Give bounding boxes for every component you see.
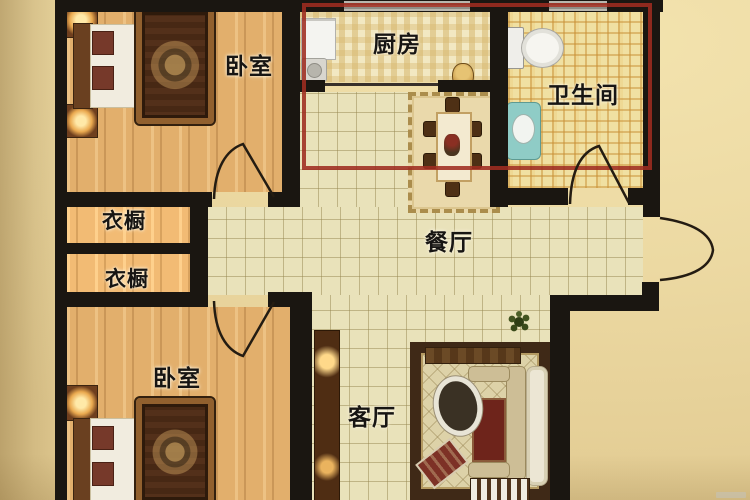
- nightstand-lamp-icon: [64, 385, 98, 421]
- wall-segment: [55, 243, 190, 254]
- sofa-arm: [468, 462, 510, 478]
- room-label-bedroom-bottom: 卧室: [153, 359, 201, 393]
- wall-segment: [268, 192, 300, 207]
- wall-segment: [490, 188, 568, 205]
- room-label-wardrobe-top: 衣橱: [102, 205, 146, 235]
- room-label-dining: 餐厅: [425, 223, 473, 257]
- bed-pillow: [92, 66, 114, 90]
- nightstand-lamp-icon: [64, 104, 98, 138]
- room-label-kitchen: 厨房: [373, 25, 421, 59]
- bed-pillow: [92, 462, 114, 486]
- room-label-bedroom-top: 卧室: [225, 47, 273, 81]
- room-label-bathroom: 卫生间: [547, 76, 619, 110]
- dining-chair-icon: [445, 181, 460, 197]
- bed-pillow: [92, 31, 114, 55]
- watermark: [716, 492, 746, 498]
- wall-segment: [55, 292, 208, 307]
- sofa-chaise: [526, 366, 548, 486]
- room-label-wardrobe-bottom: 衣橱: [105, 263, 149, 293]
- floor-plan-canvas: 卧室 厨房 卫生间 衣橱 衣橱 餐厅 卧室 客厅: [0, 0, 750, 500]
- sofa-back: [506, 366, 526, 480]
- wall-segment: [290, 292, 312, 500]
- bed-quilt: [136, 6, 214, 124]
- media-cabinet: [314, 330, 340, 500]
- tv-bench: [470, 478, 530, 500]
- wall-segment: [550, 295, 570, 500]
- console-table: [425, 347, 521, 364]
- wall-segment: [282, 0, 300, 207]
- bed-quilt: [136, 398, 214, 500]
- entry-door-arc: [660, 218, 713, 280]
- bed-pillow: [92, 426, 114, 450]
- sofa-arm: [468, 366, 510, 382]
- room-label-living: 客厅: [348, 398, 396, 432]
- wall-segment: [190, 192, 208, 307]
